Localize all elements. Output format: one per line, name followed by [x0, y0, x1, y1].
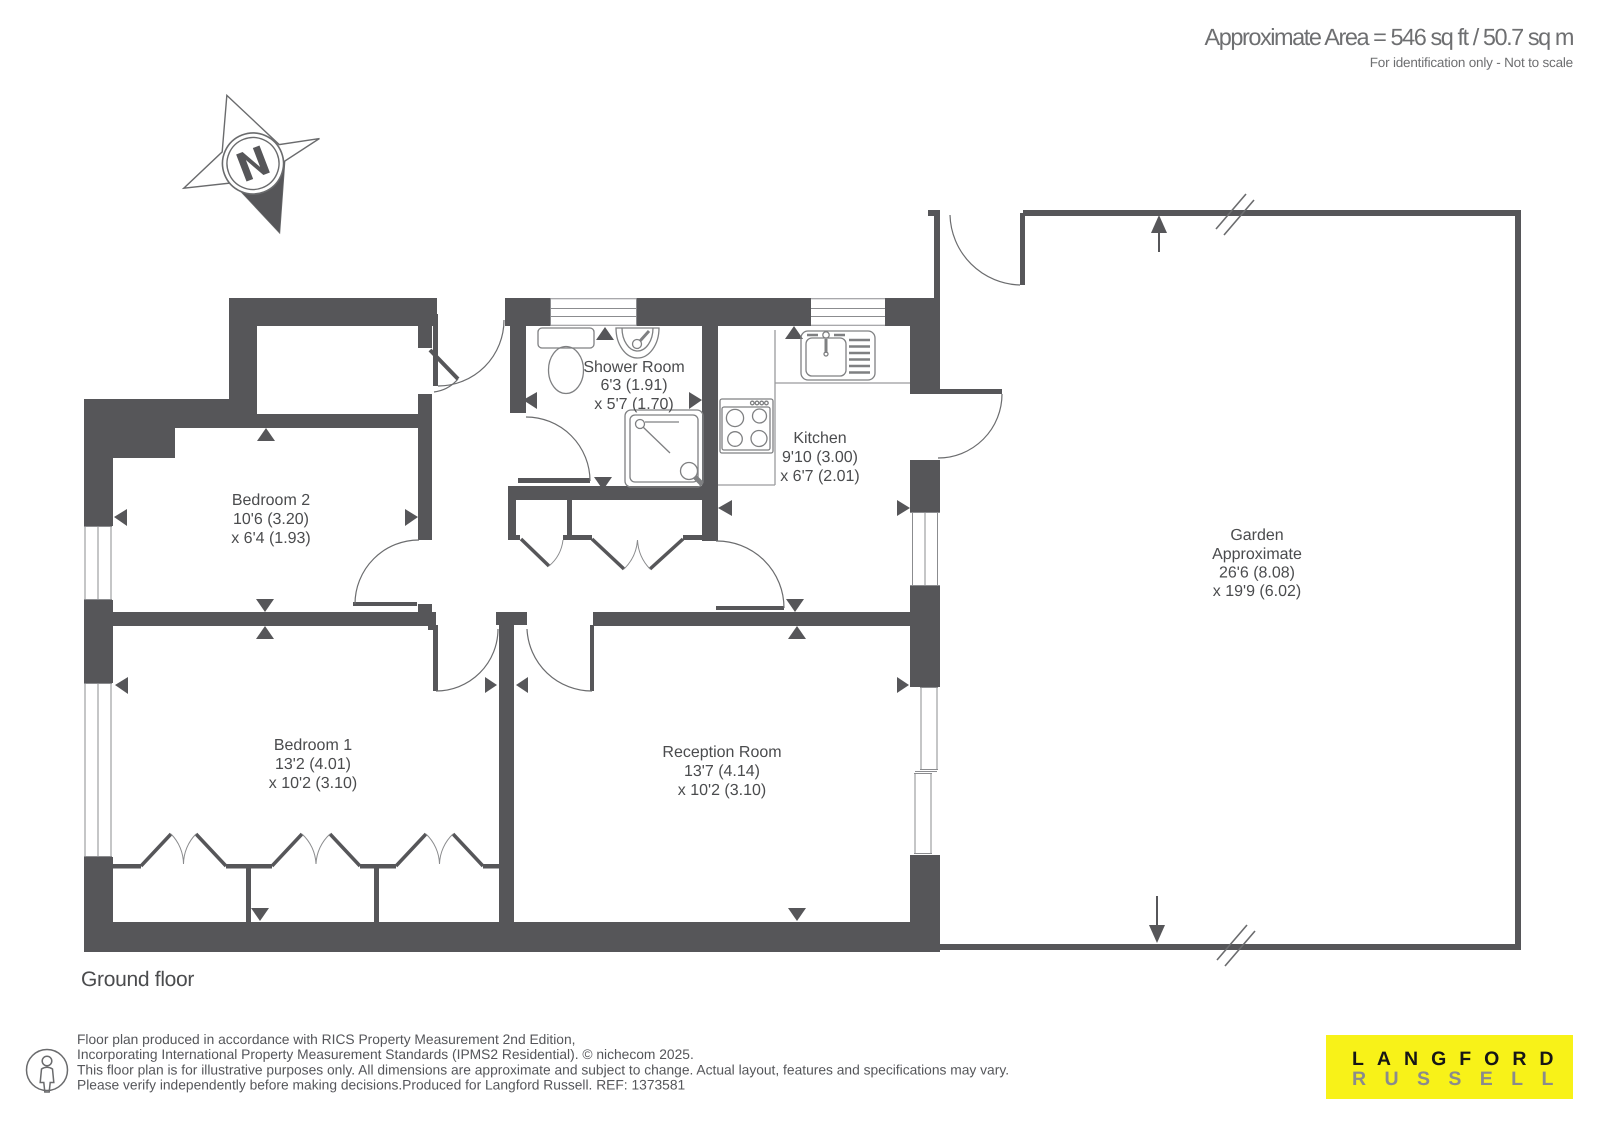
svg-text:x 10'2 (3.10): x 10'2 (3.10) [678, 782, 766, 799]
svg-text:Please verify independently be: Please verify independently before makin… [77, 1078, 685, 1093]
svg-text:RUSSELL: RUSSELL [1352, 1068, 1572, 1090]
svg-text:13'7 (4.14): 13'7 (4.14) [684, 763, 760, 780]
svg-text:Incorporating International Pr: Incorporating International Property Mea… [77, 1047, 694, 1062]
svg-text:13'2 (4.01): 13'2 (4.01) [275, 756, 351, 773]
svg-text:Garden: Garden [1230, 527, 1283, 544]
svg-text:Floor plan produced in accorda: Floor plan produced in accordance with R… [77, 1032, 575, 1047]
svg-text:For identification only - Not: For identification only - Not to scale [1370, 55, 1573, 70]
svg-text:Kitchen: Kitchen [793, 430, 846, 447]
svg-text:x 19'9 (6.02): x 19'9 (6.02) [1213, 583, 1301, 600]
svg-text:26'6 (8.08): 26'6 (8.08) [1219, 565, 1295, 582]
svg-text:Approximate Area = 546 sq ft /: Approximate Area = 546 sq ft / 50.7 sq m [1205, 24, 1574, 50]
svg-text:Reception Room: Reception Room [662, 744, 781, 761]
svg-text:This floor plan is for illustr: This floor plan is for illustrative purp… [77, 1063, 1009, 1078]
svg-text:x 6'7 (2.01): x 6'7 (2.01) [780, 468, 860, 485]
svg-text:Shower Room: Shower Room [583, 359, 684, 376]
svg-text:x 10'2 (3.10): x 10'2 (3.10) [269, 775, 357, 792]
svg-text:Ground floor: Ground floor [81, 968, 194, 991]
svg-text:9'10 (3.00): 9'10 (3.00) [782, 449, 858, 466]
svg-text:6'3 (1.91): 6'3 (1.91) [600, 377, 667, 394]
svg-text:10'6 (3.20): 10'6 (3.20) [233, 511, 309, 528]
svg-text:x 6'4 (1.93): x 6'4 (1.93) [231, 530, 311, 547]
svg-text:Bedroom 1: Bedroom 1 [274, 737, 352, 754]
svg-text:x 5'7 (1.70): x 5'7 (1.70) [594, 396, 674, 413]
svg-text:Approximate: Approximate [1212, 546, 1302, 563]
svg-text:Bedroom 2: Bedroom 2 [232, 492, 310, 509]
svg-text:LANGFORD: LANGFORD [1352, 1048, 1567, 1070]
